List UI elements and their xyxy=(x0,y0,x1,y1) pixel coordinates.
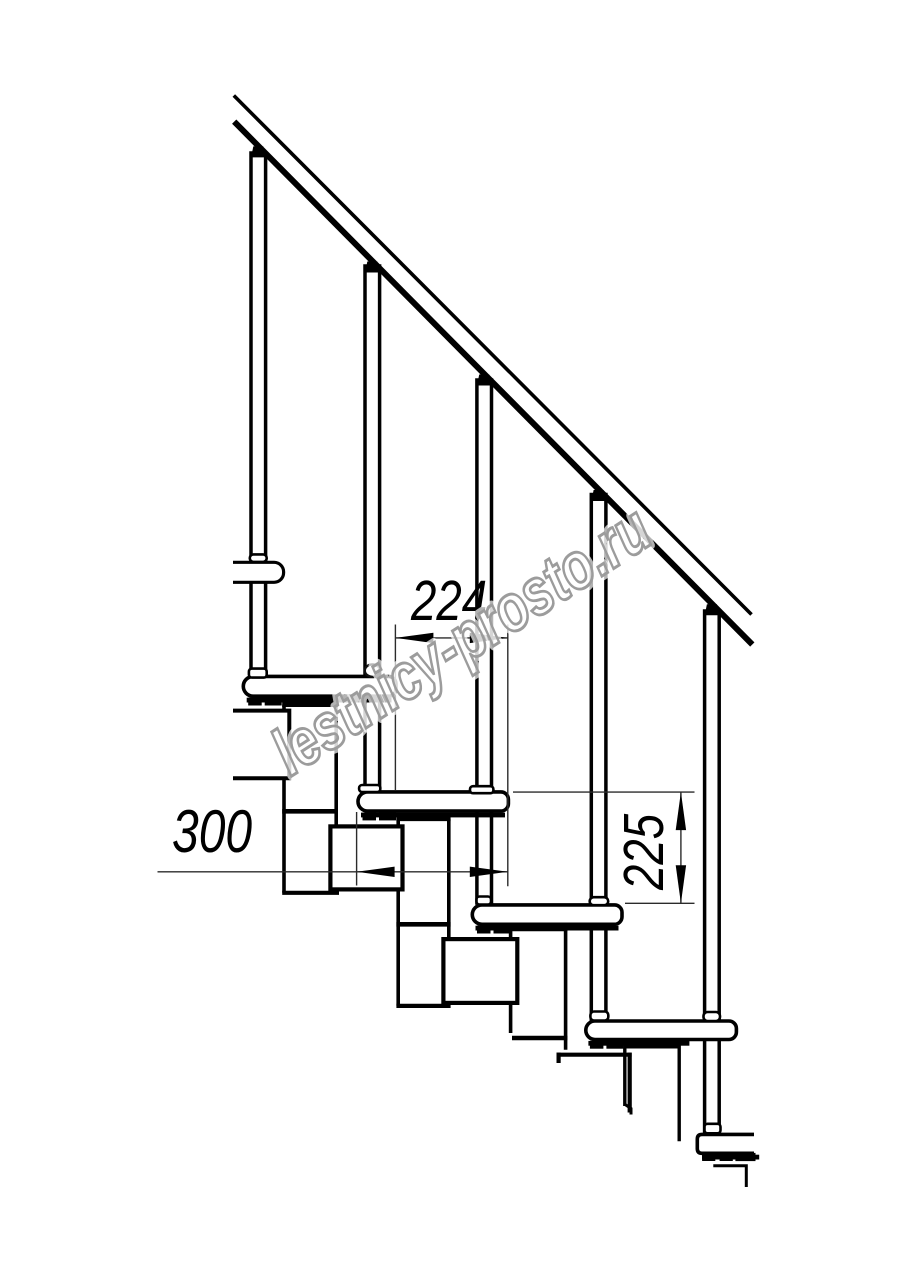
svg-text:300: 300 xyxy=(172,798,252,865)
svg-text:225: 225 xyxy=(611,814,675,891)
